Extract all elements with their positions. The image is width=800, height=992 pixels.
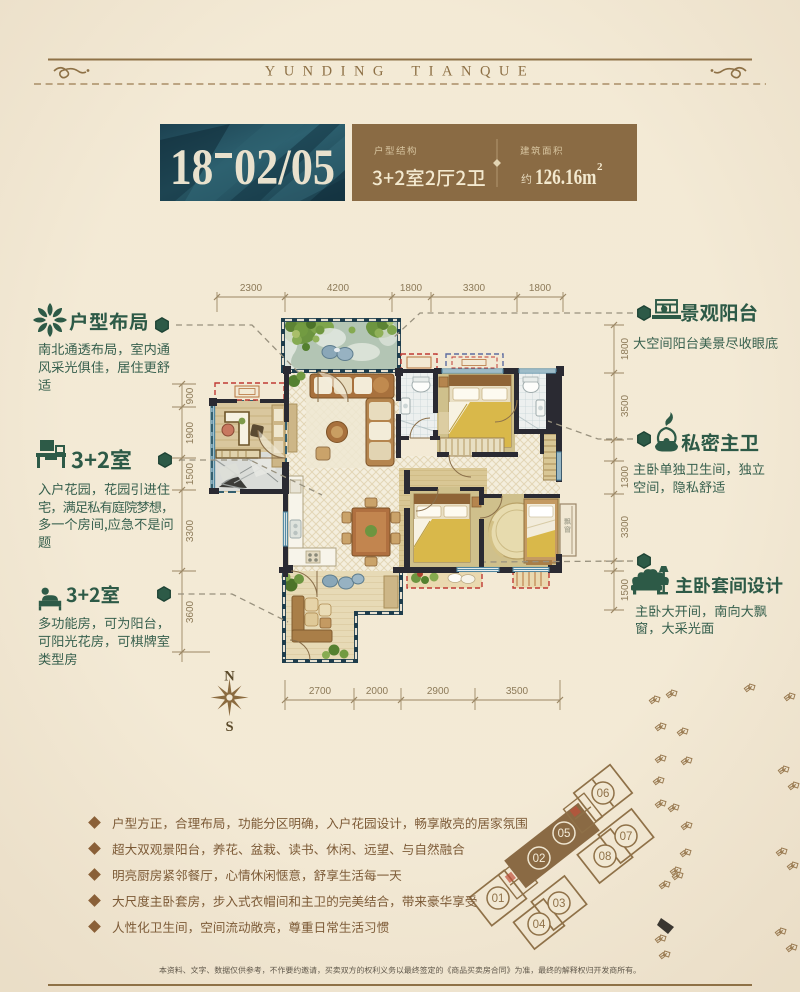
svg-text:07: 07 [620, 831, 633, 843]
svg-text:02: 02 [533, 853, 546, 865]
svg-text:2: 2 [597, 161, 603, 173]
svg-text:06: 06 [597, 788, 610, 800]
svg-text:18: 18 [170, 140, 213, 196]
svg-text:900: 900 [185, 387, 196, 404]
svg-text:1800: 1800 [620, 337, 631, 360]
svg-text:2700: 2700 [309, 686, 332, 697]
svg-text:S: S [225, 719, 233, 735]
svg-text:4200: 4200 [327, 283, 350, 294]
svg-text:02/05: 02/05 [234, 139, 335, 196]
svg-text:1800: 1800 [529, 283, 552, 294]
svg-text:N: N [224, 669, 235, 685]
svg-text:1500: 1500 [185, 462, 196, 485]
svg-text:2900: 2900 [427, 686, 450, 697]
svg-text:3500: 3500 [506, 686, 529, 697]
svg-text:03: 03 [553, 898, 566, 910]
svg-text:05: 05 [558, 828, 571, 840]
svg-text:1500: 1500 [620, 578, 631, 601]
svg-text:2000: 2000 [366, 686, 389, 697]
svg-text:1800: 1800 [400, 283, 423, 294]
svg-text:YUNDING TIANQUE: YUNDING TIANQUE [265, 64, 536, 80]
svg-text:3500: 3500 [620, 394, 631, 417]
svg-text:01: 01 [492, 893, 505, 905]
svg-text:1900: 1900 [185, 421, 196, 444]
svg-text:3300: 3300 [620, 515, 631, 538]
svg-text:3300: 3300 [463, 283, 486, 294]
svg-text:04: 04 [533, 919, 546, 931]
svg-text:2300: 2300 [240, 283, 263, 294]
svg-text:126.16m: 126.16m [535, 165, 597, 190]
svg-text:3300: 3300 [185, 519, 196, 542]
svg-text:3600: 3600 [185, 600, 196, 623]
svg-text:08: 08 [599, 851, 612, 863]
svg-text:1300: 1300 [620, 465, 631, 488]
